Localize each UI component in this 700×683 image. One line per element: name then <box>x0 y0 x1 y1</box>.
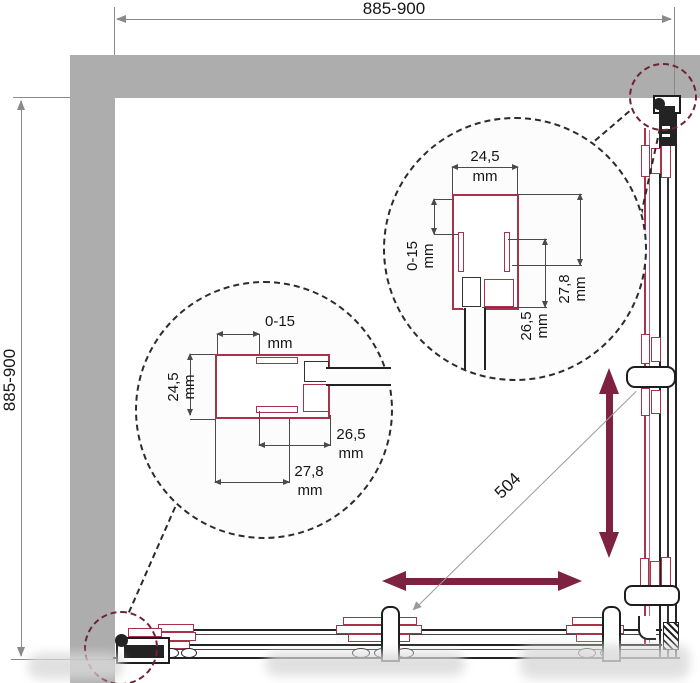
roller-bracket <box>158 624 194 632</box>
dimension-top-label: 885-900 <box>334 0 454 18</box>
roller-wheel <box>578 648 596 658</box>
extension-line <box>215 419 216 483</box>
door-stile <box>602 606 621 662</box>
detail-dim-label: 26,5 mm <box>518 294 552 358</box>
glass-panel <box>464 308 486 370</box>
callout-circle-bottom-left <box>84 611 158 683</box>
roller-bracket <box>650 561 660 587</box>
extension-line <box>508 239 547 240</box>
roller-bracket <box>348 634 410 642</box>
detail-dim-line <box>580 194 581 265</box>
detail-dim-unit: mm <box>573 277 589 302</box>
roller-bracket <box>661 144 671 178</box>
roller-wheel <box>181 648 197 658</box>
extension-line <box>434 199 452 200</box>
profile-inner-box <box>303 384 329 412</box>
extension-line <box>13 97 70 98</box>
detail-dim-label: 0-15 mm <box>404 224 438 288</box>
profile-fin <box>256 357 298 364</box>
wall-bracket <box>626 366 676 388</box>
wall-bracket <box>624 585 680 606</box>
hatched-block <box>663 622 679 650</box>
detail-dim-value: 24,5 <box>166 372 182 401</box>
detail-dim-value: 26,5 <box>519 311 535 340</box>
callout-leader-line <box>128 498 180 613</box>
extension-line <box>452 167 453 194</box>
profile-inner-box <box>462 277 481 307</box>
profile-fin <box>458 232 464 272</box>
wall-left <box>70 55 115 683</box>
detail-dim-label: 27,8 mm <box>556 257 590 321</box>
horizontal-slide-arrow <box>404 578 560 585</box>
dimension-diagonal-label: 504 <box>480 459 535 514</box>
extension-line <box>517 167 518 194</box>
roller-bracket <box>343 617 417 625</box>
detail-dim-unit: mm <box>453 169 517 185</box>
glass-panel <box>326 367 391 386</box>
corner-elbow <box>638 616 656 640</box>
detail-circle-right: 24,5 mm 0-15 mm 27,8 mm 26 <box>383 117 647 381</box>
dimension-diagonal-line <box>414 391 637 610</box>
extension-line <box>517 194 582 195</box>
detail-dim-line <box>217 334 259 335</box>
roller-bracket <box>651 390 661 414</box>
extension-line <box>114 7 115 55</box>
detail-dim-unit: mm <box>321 446 381 462</box>
detail-dim-unit: mm <box>182 375 198 400</box>
detail-dim-value: 0-15 <box>249 314 311 330</box>
dimension-left-text: 885-900 <box>1 349 19 411</box>
profile-fin <box>504 232 510 272</box>
wall-top <box>70 55 700 98</box>
detail-dim-line <box>215 482 289 483</box>
arrow-head-down-icon <box>599 532 619 558</box>
detail-dim-value: 27,8 <box>279 464 339 480</box>
detail-dim-value: 26,5 <box>321 427 381 443</box>
detail-dim-unit: mm <box>421 244 437 269</box>
roller-bracket <box>336 625 422 634</box>
detail-dim-unit: mm <box>535 314 551 339</box>
bracket-slot <box>662 134 670 137</box>
extension-line <box>259 334 260 354</box>
detail-dim-unit: mm <box>280 483 340 499</box>
dimension-left-line <box>21 101 22 656</box>
shower-enclosure-dimension-drawing: 885-900 885-900 <box>0 0 700 683</box>
roller-bracket <box>641 388 650 416</box>
extension-line <box>217 334 218 354</box>
roller-wheel <box>352 648 370 658</box>
profile-fin <box>256 406 298 413</box>
profile-inner-box <box>484 279 514 307</box>
door-stile <box>381 606 400 662</box>
detail-dim-value: 24,5 <box>453 149 517 165</box>
extension-line <box>259 411 260 446</box>
dimension-top-line <box>117 19 671 20</box>
roller-bracket <box>641 334 650 364</box>
detail-dim-value: 0-15 <box>405 241 421 271</box>
arrow-head-left-icon <box>382 571 406 591</box>
callout-circle-top-right <box>629 63 697 131</box>
arrow-head-up-icon <box>599 368 619 394</box>
dimension-left-label: 885-900 <box>0 320 20 440</box>
detail-dim-value: 27,8 <box>557 274 573 303</box>
detail-dim-label: 24,5 mm <box>165 355 199 419</box>
detail-dim-line <box>259 445 330 446</box>
roller-bracket <box>651 337 661 362</box>
arrow-head-right-icon <box>558 571 582 591</box>
detail-circle-left: 0-15 mm 24,5 mm 26,5 mm 27,8 mm <box>135 281 393 539</box>
extension-line <box>190 419 215 420</box>
